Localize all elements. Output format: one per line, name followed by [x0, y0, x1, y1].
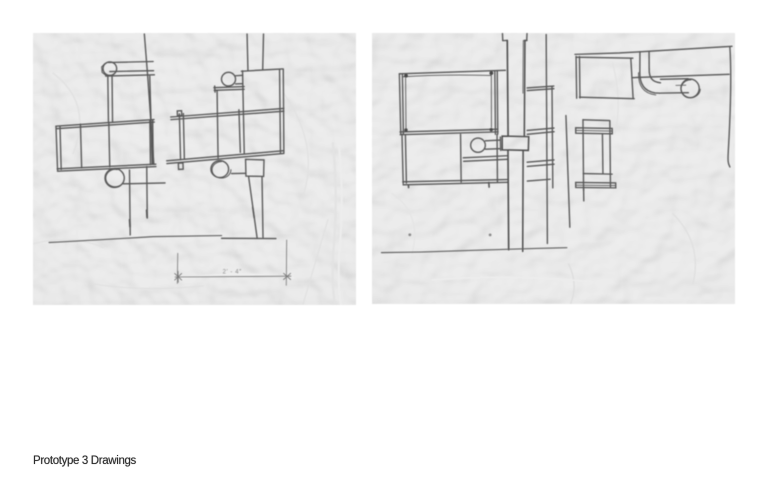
svg-text:2′ - 4″: 2′ - 4″: [223, 269, 242, 275]
